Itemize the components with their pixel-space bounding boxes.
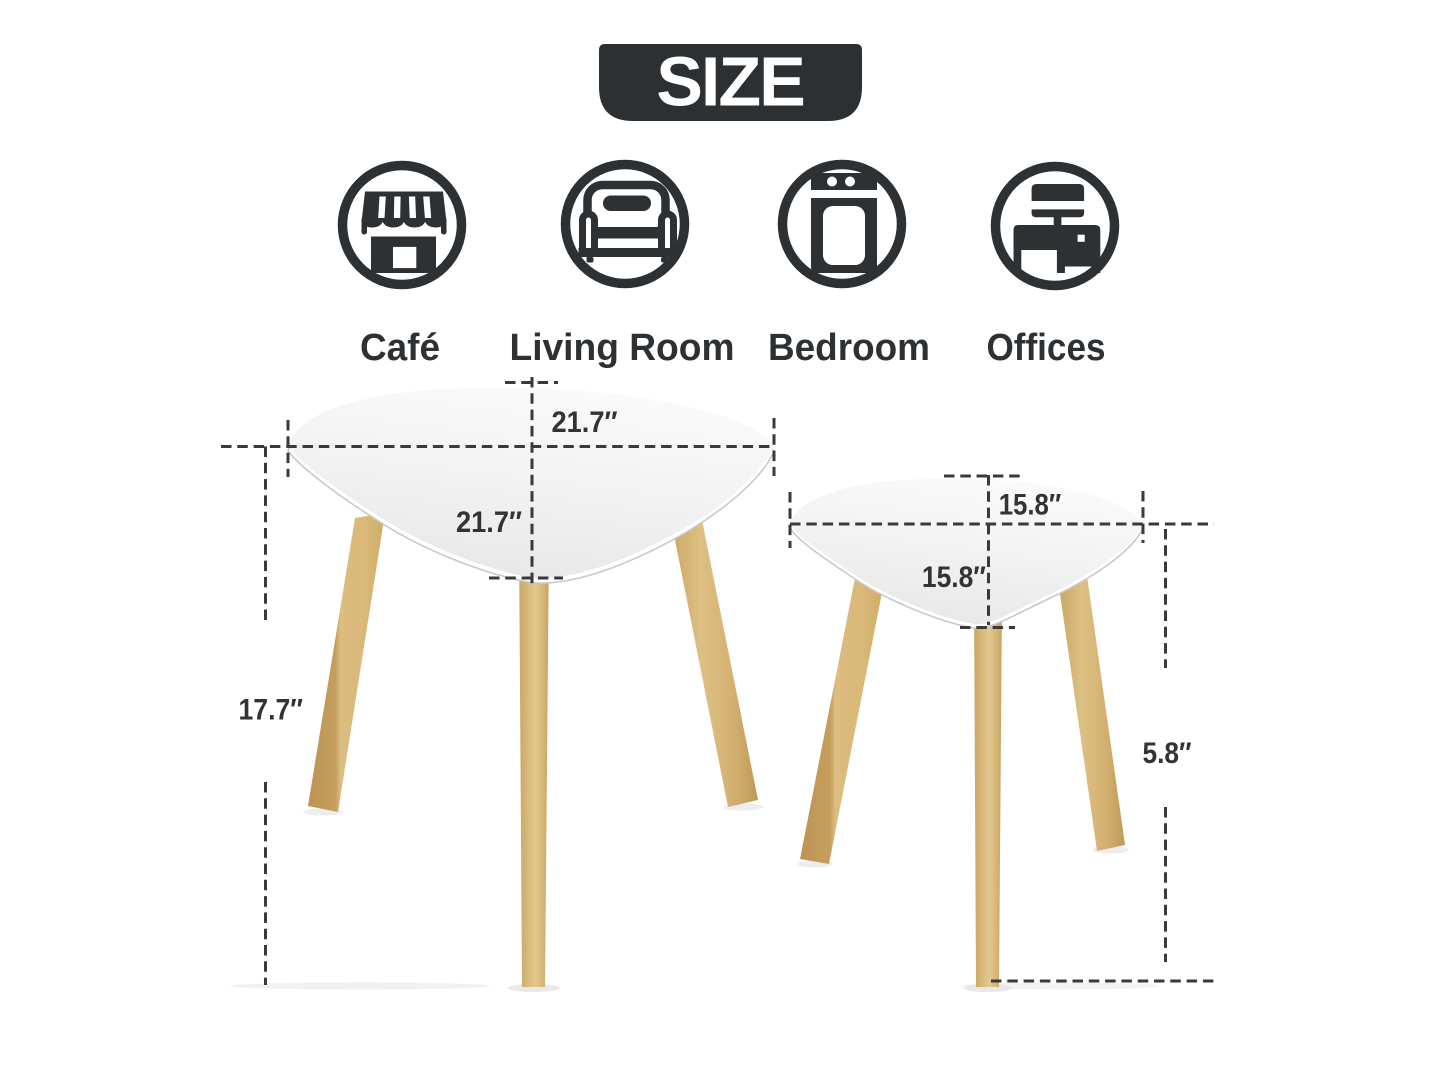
svg-text:SIZE: SIZE — [656, 43, 804, 121]
svg-text:21.7″: 21.7″ — [456, 506, 522, 539]
svg-text:17.7″: 17.7″ — [239, 694, 304, 727]
svg-text:Living Room: Living Room — [510, 327, 735, 369]
svg-text:Offices: Offices — [987, 327, 1106, 369]
svg-text:15.8″: 15.8″ — [922, 561, 986, 594]
svg-text:5.8″: 5.8″ — [1143, 737, 1192, 770]
svg-text:15.8″: 15.8″ — [999, 488, 1061, 521]
svg-text:Bedroom: Bedroom — [768, 327, 930, 369]
svg-text:Café: Café — [360, 327, 440, 369]
svg-text:21.7″: 21.7″ — [552, 406, 618, 439]
